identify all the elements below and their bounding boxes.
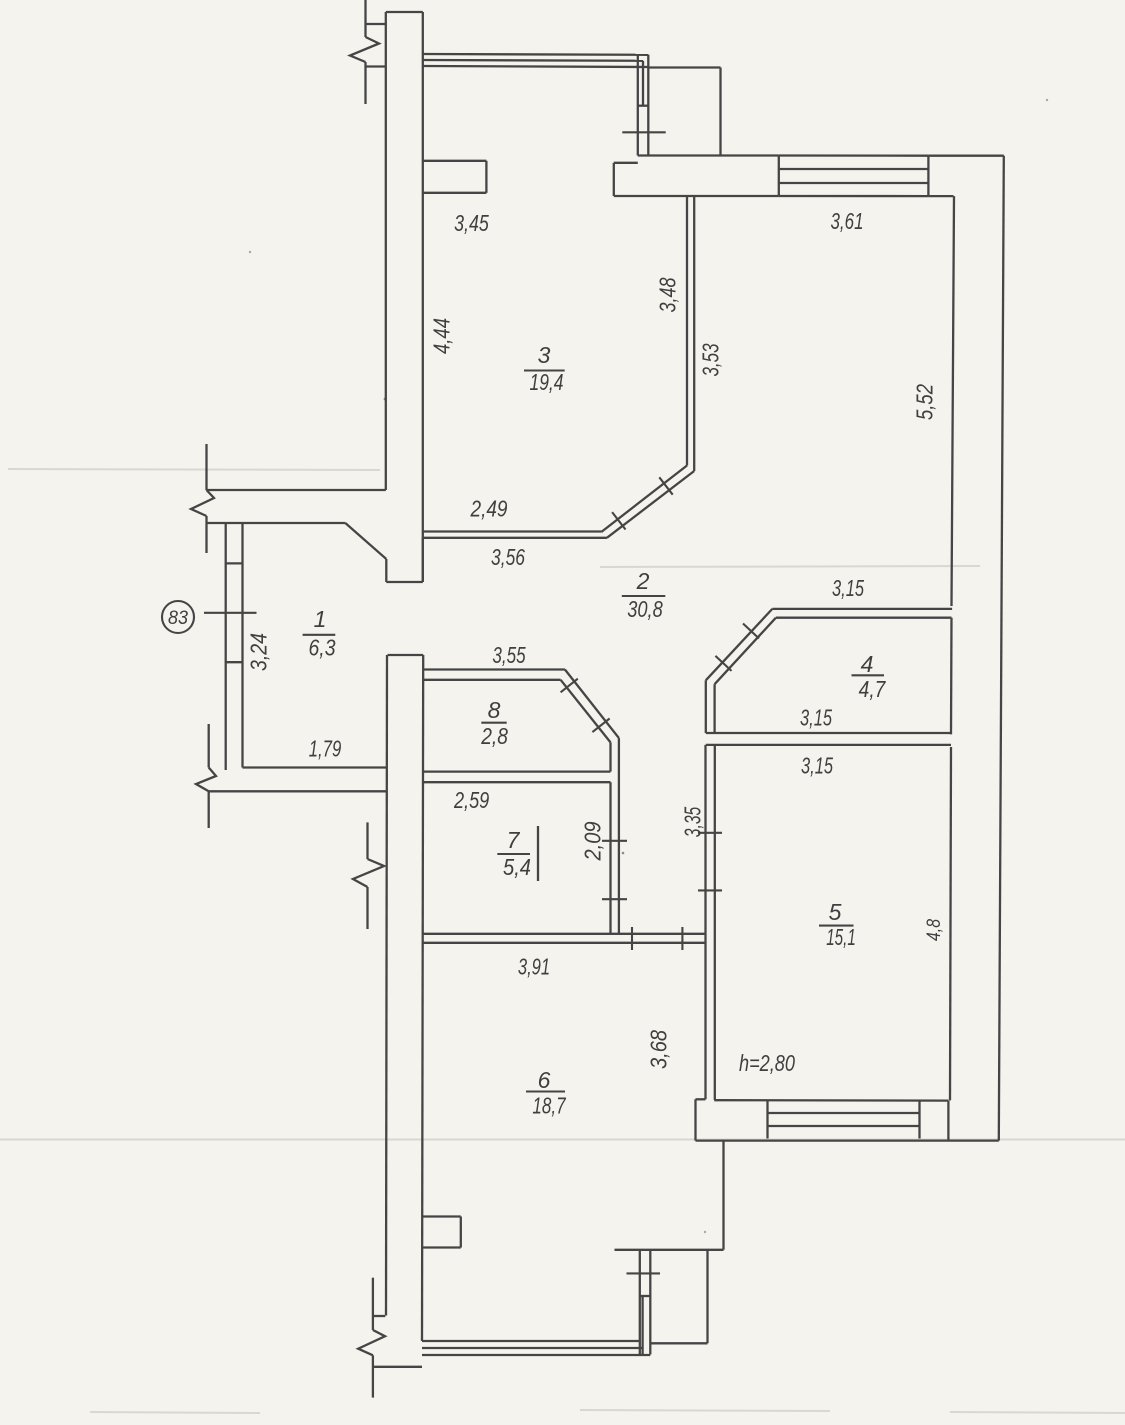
svg-text:4,7: 4,7 — [859, 676, 887, 702]
svg-text:83: 83 — [168, 608, 188, 629]
svg-text:1: 1 — [314, 606, 327, 632]
svg-text:h=2,80: h=2,80 — [739, 1050, 795, 1076]
svg-text:1,79: 1,79 — [309, 736, 342, 762]
svg-text:4,44: 4,44 — [429, 318, 455, 354]
svg-text:3,56: 3,56 — [491, 544, 525, 570]
svg-text:3,53: 3,53 — [698, 343, 724, 376]
svg-text:3,15: 3,15 — [800, 705, 832, 731]
svg-text:6: 6 — [538, 1067, 551, 1093]
svg-text:3: 3 — [538, 342, 551, 368]
svg-text:7: 7 — [507, 827, 521, 853]
svg-text:4,8: 4,8 — [924, 919, 945, 941]
svg-text:3,61: 3,61 — [831, 208, 864, 234]
svg-text:3,48: 3,48 — [655, 277, 681, 312]
svg-text:2,49: 2,49 — [470, 496, 508, 522]
svg-text:4: 4 — [861, 651, 874, 677]
svg-text:18,7: 18,7 — [532, 1093, 566, 1119]
svg-text:6,3: 6,3 — [309, 635, 336, 661]
svg-text:5: 5 — [829, 899, 842, 925]
svg-text:3,91: 3,91 — [518, 954, 550, 980]
svg-text:5,52: 5,52 — [912, 384, 938, 420]
svg-text:8: 8 — [488, 697, 501, 723]
svg-text:2,59: 2,59 — [453, 787, 489, 813]
svg-text:3,15: 3,15 — [832, 575, 864, 601]
svg-text:3,15: 3,15 — [801, 753, 833, 779]
svg-text:3,55: 3,55 — [492, 642, 525, 668]
svg-text:15,1: 15,1 — [826, 924, 856, 950]
svg-text:3,45: 3,45 — [454, 210, 489, 236]
svg-text:3,24: 3,24 — [246, 633, 272, 671]
svg-text:2: 2 — [636, 568, 650, 594]
svg-text:3,35: 3,35 — [680, 807, 706, 838]
svg-text:19,4: 19,4 — [530, 369, 564, 395]
svg-text:2,8: 2,8 — [480, 723, 508, 749]
svg-text:5,4: 5,4 — [503, 854, 531, 880]
svg-text:2,09: 2,09 — [580, 821, 606, 861]
svg-text:3,68: 3,68 — [646, 1030, 672, 1069]
svg-text:30,8: 30,8 — [627, 596, 663, 622]
